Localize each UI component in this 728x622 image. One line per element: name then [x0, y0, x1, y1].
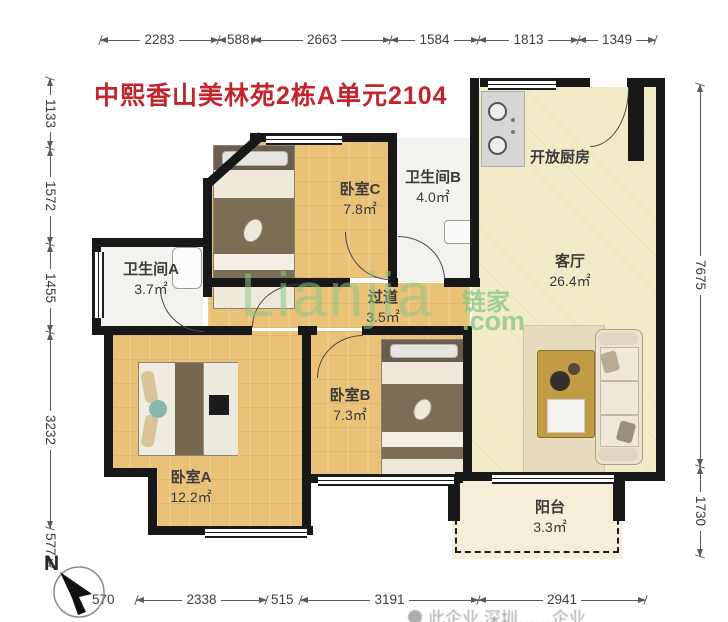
- blanket: [382, 447, 464, 459]
- wall: [362, 326, 472, 335]
- wall: [656, 78, 665, 481]
- wall: [203, 247, 212, 297]
- dimension-segment: 1572: [42, 148, 58, 244]
- dimension-segment: 3232: [42, 332, 58, 528]
- north-compass: N: [40, 552, 112, 622]
- table-decor: [568, 363, 580, 375]
- bed-bedroom-a: [138, 362, 238, 456]
- dimension-segment: 2663: [253, 32, 390, 48]
- floorplan-canvas: 中熙香山美林苑2栋A单元2104: [0, 0, 728, 622]
- wall: [104, 335, 113, 477]
- tv-square: [209, 395, 229, 415]
- sheet-stripe: [214, 254, 294, 270]
- stove-knob: [511, 130, 515, 134]
- window: [488, 79, 556, 90]
- sofa: [595, 329, 643, 465]
- tray: [547, 399, 585, 433]
- wall: [302, 326, 311, 535]
- pillow: [140, 370, 158, 404]
- footer-watermark: 此企业 深圳……企业: [408, 604, 586, 622]
- dimension-segment: 1730: [692, 466, 708, 556]
- wall-entry-stub: [628, 87, 644, 161]
- dimension-segment: 1455: [42, 244, 58, 332]
- wall-balcony-stub: [448, 481, 460, 521]
- dimension-segment: 2283: [100, 32, 218, 48]
- footer-logo-icon: [408, 610, 422, 622]
- wall: [463, 330, 472, 481]
- plan-title: 中熙香山美林苑2栋A单元2104: [94, 76, 448, 112]
- wall: [92, 326, 252, 335]
- dimension-segment: 2338: [136, 592, 266, 608]
- table-decor: [550, 371, 570, 391]
- window: [266, 134, 342, 145]
- window: [205, 527, 307, 538]
- sofa-cushion: [600, 381, 639, 415]
- label-bathroom-a: 卫生间A 3.7㎡: [103, 260, 199, 298]
- wall: [444, 278, 480, 287]
- footer-text: 此企业 深圳……企业: [428, 604, 586, 622]
- dimension-segment: 1584: [390, 32, 478, 48]
- sofa-arm: [598, 448, 638, 461]
- coffee-table: [537, 350, 595, 438]
- dimension-segment: 588: [218, 32, 253, 48]
- dimension-segment: 1813: [478, 32, 578, 48]
- blanket: [175, 363, 203, 455]
- stove-knob: [511, 118, 515, 122]
- window: [318, 475, 454, 486]
- label-bedroom-b: 卧室B 7.3㎡: [305, 386, 395, 424]
- dimension-col-left: 1133 1572 1455 3232 577: [42, 78, 58, 567]
- pillow: [390, 344, 458, 358]
- wall: [92, 238, 212, 247]
- dimension-row-top: 2283 588 2663 1584 1813 1349: [100, 32, 656, 48]
- wall: [203, 178, 212, 247]
- pillow: [140, 414, 158, 448]
- balcony-door-window: [492, 473, 614, 484]
- label-bathroom-b: 卫生间B 4.0㎡: [393, 168, 473, 206]
- label-living: 客厅 26.4㎡: [520, 252, 620, 290]
- dimension-col-right: 7675 1730: [692, 84, 708, 557]
- label-bedroom-a: 卧室A 12.2㎡: [145, 468, 237, 506]
- label-kitchen: 开放厨房: [505, 148, 615, 168]
- sofa-arm: [598, 332, 638, 345]
- wall-balcony-stub: [613, 481, 625, 521]
- dimension-segment: 1349: [578, 32, 655, 48]
- dimension-segment: 7675: [692, 84, 708, 466]
- wall: [203, 278, 350, 287]
- label-hallway: 过道 3.5㎡: [340, 288, 426, 326]
- burner-icon: [488, 102, 507, 121]
- dimension-segment: 515: [266, 592, 300, 608]
- dimension-segment: 1133: [42, 78, 58, 148]
- north-label: N: [44, 552, 59, 576]
- label-balcony: 阳台 3.3㎡: [505, 498, 595, 536]
- round-pillow: [149, 400, 167, 418]
- sheet-stripe: [382, 432, 464, 447]
